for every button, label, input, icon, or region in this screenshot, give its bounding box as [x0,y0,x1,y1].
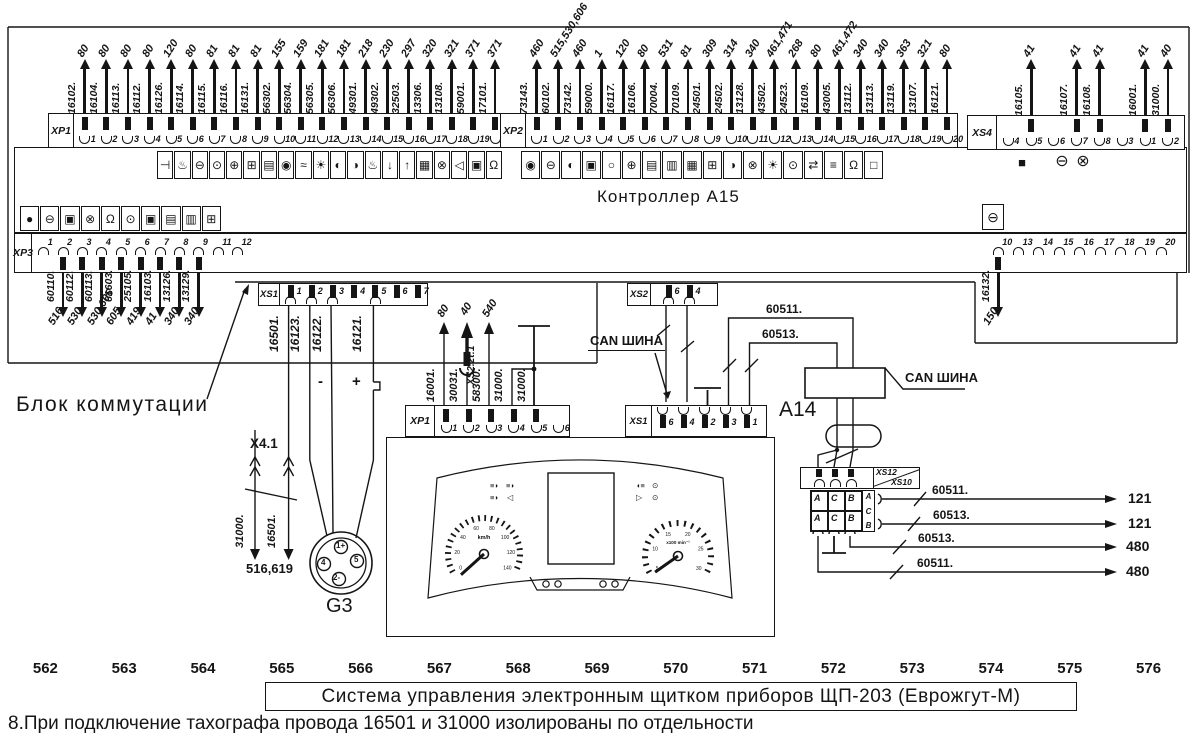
pin-terminal [341,117,347,130]
grid-number: 573 [873,660,952,677]
indicator-icon: ⊗ [81,206,100,231]
pin-terminal [168,117,174,130]
indicator-icon: ⊖ [192,151,208,179]
indicator-icon: Ω [844,151,863,179]
wire-destination: 480 [1126,564,1149,579]
pin: 8 13126. 340 [170,234,189,272]
right-arrow-icon: ▷ [636,493,643,502]
pin-socket-icon [661,136,672,144]
pin: 5 [525,406,548,436]
wire-label: 16117. [605,83,618,114]
pin-socket-icon [446,136,457,144]
wire-label: 16131. [239,82,252,114]
pin-terminal [642,117,648,130]
pin: 10 56302. 155 [268,114,290,147]
pin-terminal [394,285,400,298]
pin-socket-icon [317,136,328,144]
pin-socket-icon [942,136,953,144]
indicator-icon: ♨ [174,151,190,179]
grid-number: 575 [1030,660,1109,677]
pin-socket-icon [327,296,338,304]
pin-socket-icon [135,247,146,255]
connector-label: XP1 [406,406,435,436]
svg-text:25: 25 [698,547,704,553]
pin: 7 16107. 41 [1065,116,1088,149]
wire-label: 73143. [518,82,531,114]
wire-label: 16126. [153,82,166,114]
pin-terminal [879,117,885,130]
svg-text:15: 15 [665,532,671,538]
pin-socket-icon [553,425,564,433]
pin-number: 2 [67,238,72,247]
indicator-icon: Ω [486,151,502,179]
pin-number: 2 [1174,137,1179,146]
pin-number: 4 [1014,137,1019,146]
pin-number: 4 [520,424,525,433]
pin-terminal [685,117,691,130]
pin-terminal [771,117,777,130]
pin: 10 24502. 314 [720,114,742,147]
pin-socket-icon [370,296,381,304]
wire-arrow: 16126. 120 [170,68,173,114]
grid-number: 567 [400,660,479,677]
wire-arrow: 43502. 461,471 [773,68,776,114]
connector-cluster-xp1: XP1 1 2 3 4 [405,405,570,437]
wire-label: 56304. [282,82,295,114]
pin-terminal [744,415,750,428]
pin-number: 8 [183,238,188,247]
pin-number: 3 [497,424,502,433]
pin-socket-icon [699,407,710,415]
grid-number: 566 [321,660,400,677]
lamp-icon: ⊙ [652,493,658,502]
wire-label: 60112. [64,271,77,302]
indicator-icon: ⊞ [703,151,722,179]
pin-terminal [663,117,669,130]
instrument-cluster-face: 0 20 40 60 80 100 120 140 km/h 5 10 15 2… [387,438,773,635]
pin: 3 73142. 460 [569,114,591,147]
pin: 3 [480,406,503,436]
pin-number: 6 [1060,137,1065,146]
pin-number: 3 [86,238,91,247]
indicator-icon: ▣ [141,206,160,231]
wire-label: 16112. [131,83,144,114]
pin-socket-icon [814,479,825,487]
wire-arrow: 56306. 181 [343,68,346,114]
indicator-icon: ▤ [642,151,661,179]
wire-label: 24501. [691,82,704,114]
pin-socket-icon [1162,138,1173,146]
pin-terminal [470,117,476,130]
wire-arrow: 16001. 41 [1144,68,1147,116]
pin-number: 20 [1165,238,1175,247]
pin: 6 [386,284,407,305]
connector-xs2: XS2 6 4 [627,283,718,306]
wire-label: 59001. [455,82,468,114]
pin-terminal [147,117,153,130]
svg-text:30: 30 [696,566,702,572]
wire-label: 16501. [266,514,279,548]
pin-socket-icon [1013,247,1024,255]
pin-socket-icon [747,136,758,144]
svg-text:x100 min⁻¹: x100 min⁻¹ [666,540,690,545]
wire-arrow: 16112. 80 [148,68,151,114]
wire-arrow: 16104. 80 [105,68,108,114]
pin-socket-icon [726,136,737,144]
pin: 8 16116. 81 [225,114,247,147]
pin-number: 1 [1151,137,1156,146]
pin-number: 4 [696,287,701,296]
indicator-icon: ♨ [365,151,381,179]
indicator-icon: ▣ [60,206,79,231]
indicator-icon: ● [20,206,39,231]
wire-arrow: 32503. 297 [407,68,410,114]
left-arrow-icon: ◁ [507,493,514,502]
grid-number: 570 [636,660,715,677]
pin-terminal [577,117,583,130]
pin-socket-icon [382,136,393,144]
indicator-icon: ⊙ [209,151,225,179]
pin: 17 [1090,234,1110,272]
svg-text:100: 100 [501,535,510,541]
wire-label: 49302. [369,82,382,114]
wire-arrow: 16113. 80 [127,68,130,114]
grid-number: 564 [164,660,243,677]
wire-label: 43005. [821,82,834,114]
wire-label: 13128. [734,82,747,114]
pin-socket-icon [425,136,436,144]
wire-label: 16104. [88,82,101,114]
pin-socket-icon [306,296,317,304]
pin-number: 5 [542,424,547,433]
wire-label: 31000. [234,514,247,548]
g3-pin-label: 1+ [336,542,345,550]
pin-socket-icon [360,136,371,144]
pin-terminal [176,257,182,270]
pin-terminal [511,409,517,422]
pin: 7 [407,284,428,305]
pin: 2 31000. 40 [1157,116,1180,149]
indicator-icon: ⊣ [157,151,173,179]
wire-label: 43502. [756,82,769,114]
wire-arrow: 24523. 268 [795,68,798,114]
wire-arrow: 16116. 81 [235,68,238,114]
connector-label: XS2 [628,284,651,305]
wire-label: 31000. [493,368,506,402]
pin: 20 16121. 80 [936,114,958,147]
pin: 13 [1008,234,1028,272]
wire-arrow: 43005. 461,472 [838,68,841,114]
wire-label: 60110. [45,271,58,302]
g3-pin-label: 5 [354,556,358,564]
drawing-title: Система управления электронным щитком пр… [265,682,1077,711]
wire-destination: 121 [1128,516,1151,531]
wire-label: 16106. [626,82,639,114]
pin-socket-icon [790,136,801,144]
indicator-icon: ⇄ [804,151,823,179]
pin: 5 16117. 120 [612,114,634,147]
wire-label: 60511. [932,484,968,497]
indicator-icon-row-1a: ⊣♨⊖⊙⊕⊞▤◉≈☀◐◑♨↓↑▦⊗◁▣Ω [157,151,502,179]
pin-terminal [702,415,708,428]
indicator-icon: Ω [101,206,120,231]
pin-socket-icon [1003,138,1014,146]
indicator-icon: ⊖ [1053,153,1071,171]
connector-label: XP1 [49,114,74,147]
pin: 2 [694,406,715,436]
wire-arrow: 16115. 81 [213,68,216,114]
pin-socket-icon [1026,138,1037,146]
wire-label: 16123. [289,315,302,352]
wire-label: 56302. [261,82,274,114]
pin: 4 [344,284,365,305]
pin-socket-icon [463,425,474,433]
g3-designator: G3 [326,596,353,617]
pin: 10 16132. 150 [988,234,1008,272]
wire-label: 30031. [448,368,461,402]
pin: 4 60113. 530,606 [92,234,111,272]
pin-terminal [660,415,666,428]
wire-label: 60511. [917,557,953,570]
pin-terminal [298,117,304,130]
pin: 11 56304. 159 [290,114,312,147]
pin-terminal [427,117,433,130]
pin-socket-icon [101,136,112,144]
pin-number: 3 [1128,137,1133,146]
wire-label: 60511. [766,303,802,316]
wire-label: 59000. [583,82,596,114]
pin: 16 [1070,234,1090,272]
svg-text:10: 10 [652,547,658,553]
connector-xs4: XS4 4 5 16105. 41 [967,115,1185,150]
pin-terminal [79,257,85,270]
indicator-icon: ▥ [662,151,681,179]
pin-socket-icon [639,136,650,144]
pin-socket-icon [678,407,689,415]
pin: 4 [673,406,694,436]
pin-number: 12 [242,238,252,247]
pin: 5 16126. 120 [160,114,182,147]
indicator-icon: ≈ [295,151,311,179]
svg-text:60: 60 [473,526,479,532]
pin-letter: B [845,491,862,511]
pin: 1 73143. 460 [526,114,548,147]
pin-socket-icon [116,247,127,255]
indicator-icon: ▤ [161,206,180,231]
pin-socket-icon [490,136,501,144]
indicator-icon-row-1b: ◉⊖◐▣○⊕▤▥▦⊞◑⊗☀⊙⇄≡Ω□ [521,151,883,179]
indicator-icon: ⊗ [743,151,762,179]
wire-label: 58300. [471,368,484,402]
pin-socket-icon [166,136,177,144]
wire-arrow: 49301. 218 [364,68,367,114]
pin-socket-icon [1135,247,1146,255]
pin-terminal [848,469,854,477]
indicator-icon: ⊗ [434,151,450,179]
indicator-icon: ⊖ [40,206,59,231]
pin: 11 [209,234,228,272]
indicator-icon: ⊕ [622,151,641,179]
pin-socket-icon [920,136,931,144]
connector-label: XP2 [501,114,526,147]
pin: 12 [228,234,247,272]
wire-arrow: 16121. 80 [946,68,949,114]
indicator-icon: ≡ [824,151,843,179]
pin: 19 [1131,234,1151,272]
pin: 3 [1111,116,1134,149]
wire-label: 73142. [562,82,575,114]
pin-terminal [534,117,540,130]
pin-number: 5 [1037,137,1042,146]
drawing-title-text: Система управления электронным щитком пр… [322,686,1021,708]
pin-socket-icon [174,247,185,255]
pin-terminal [488,409,494,422]
pin-terminal [384,117,390,130]
pin-letter: C [863,507,874,516]
pin-socket-icon [1094,138,1105,146]
wire-label: 13306. [412,82,425,114]
svg-text:0: 0 [459,566,462,572]
pin-terminal [1097,119,1103,132]
grid-number: 571 [715,660,794,677]
pin-terminal [995,257,1001,270]
pin-letter: B [863,521,874,530]
pin-socket-icon [769,136,780,144]
pin-socket-icon [77,247,88,255]
wire-label: 13119. [885,83,898,114]
pin-socket-icon [855,136,866,144]
wire-arrow: 56302. 155 [278,68,281,114]
wire-arrow: 17101. 371 [494,68,497,114]
pin-socket-icon [846,479,857,487]
pin-terminal [276,117,282,130]
pin-terminal [836,117,842,130]
indicator-icon: ⊙ [783,151,802,179]
pin: 2 16104. 80 [96,114,118,147]
wire-arrow: 13107. 321 [924,68,927,114]
indicator-icon: ▥ [182,206,201,231]
pin-socket-icon [1033,247,1044,255]
wire-arrow: 31000. 40 [1167,68,1170,116]
wire-label: 24502. [713,82,726,114]
pin-terminal [599,117,605,130]
svg-text:40: 40 [460,535,466,541]
pin-socket-icon [338,136,349,144]
pin-socket-icon [155,247,166,255]
pin: 3 [322,284,343,305]
pin-socket-icon [993,247,1004,255]
pin-terminal [406,117,412,130]
pin-terminal [707,117,713,130]
pin-terminal [793,117,799,130]
wire-label: 16116. [218,83,231,114]
connector-label: XS1 [626,406,652,436]
pin-terminal [723,415,729,428]
indicator-icon: ⊞ [202,206,221,231]
wire-label: 13129. [180,270,193,302]
pin: 3 [715,406,736,436]
wire-arrow: 16107. 41 [1075,68,1078,116]
wire-label: 16115. [196,83,209,114]
pin: 11 13128. 340 [742,114,764,147]
indicator-icon: ▣ [468,151,484,179]
pin: 9 24501. 309 [699,114,721,147]
block-commutation-label: Блок коммутации [16,394,209,416]
pin-socket-icon [187,136,198,144]
pin: 1 [34,234,53,272]
wire-arrow: 16105. 41 [1030,68,1033,116]
wire-arrow: 16132. 150 [997,272,1000,308]
wire-arrow: 49302. 230 [386,68,389,114]
pin-socket-icon [1095,247,1106,255]
pin: 15 49302. 230 [376,114,398,147]
pin: 1 16102. 80 [74,114,96,147]
pin: 18 13119. 363 [893,114,915,147]
pin-terminal [118,257,124,270]
abc-pin-block: A C B A C B [810,490,863,532]
polarity-plus: + [352,374,361,390]
wire-arrow: 16109. 80 [816,68,819,114]
pin-terminal [443,409,449,422]
wire-label: 70004. [648,82,661,114]
a14-designator: А14 [779,399,816,421]
pin-terminal [1028,119,1034,132]
pin: 12 56305. 181 [312,114,334,147]
connector-xp1: XP1 1 16102. 80 2 16104. 80 [48,113,506,148]
connector-label: XS12 [876,468,897,477]
pin-terminal [620,117,626,130]
pin: 17 13113. 340 [872,114,894,147]
pin-socket-icon [618,136,629,144]
pin-terminal [190,117,196,130]
pin-letter: A [811,511,828,531]
wire-label: 31000. [516,368,529,402]
wire-label: 13107. [907,82,920,114]
pin: 12 43502. 461,471 [764,114,786,147]
pin-socket-icon [144,136,155,144]
pin-number: 6 [145,238,150,247]
pin-number: 9 [203,238,208,247]
pin-terminal [466,409,472,422]
wire-label: 16001. [425,368,438,402]
connector-cluster-xs1: XS1 6 4 2 3 [625,405,767,437]
indicator-icon: ◑ [723,151,742,179]
wire-arrow: 13129. 340 [197,272,200,308]
wire-arrow: 16102. 80 [83,68,86,114]
wire-arrow: 13128. 340 [751,68,754,114]
pin-socket-icon [812,136,823,144]
pin: 4 [503,406,526,436]
pin-number: 7 [1083,137,1088,146]
pin: 1 [280,284,301,305]
indicator-icon: ▤ [261,151,277,179]
wire-label: 13113. [864,83,877,114]
wire-arrow: 16131. 81 [256,68,259,114]
pin: 14 49301. 218 [355,114,377,147]
pin: 6 25105. 419 [131,234,150,272]
pin-terminal [858,117,864,130]
pin-terminal [555,117,561,130]
connector-xs12-xs10: XS12 XS10 [800,467,920,489]
grid-number: 563 [85,660,164,677]
connector-xs1-commutation: XS1 1 2 3 4 [258,283,428,306]
grid-number: 565 [242,660,321,677]
pin-terminal [363,117,369,130]
pin [843,468,859,488]
wire-arrow: 16114. 80 [191,68,194,114]
wire-label: 16501. [268,315,281,352]
wire-arrow: 56304. 159 [299,68,302,114]
